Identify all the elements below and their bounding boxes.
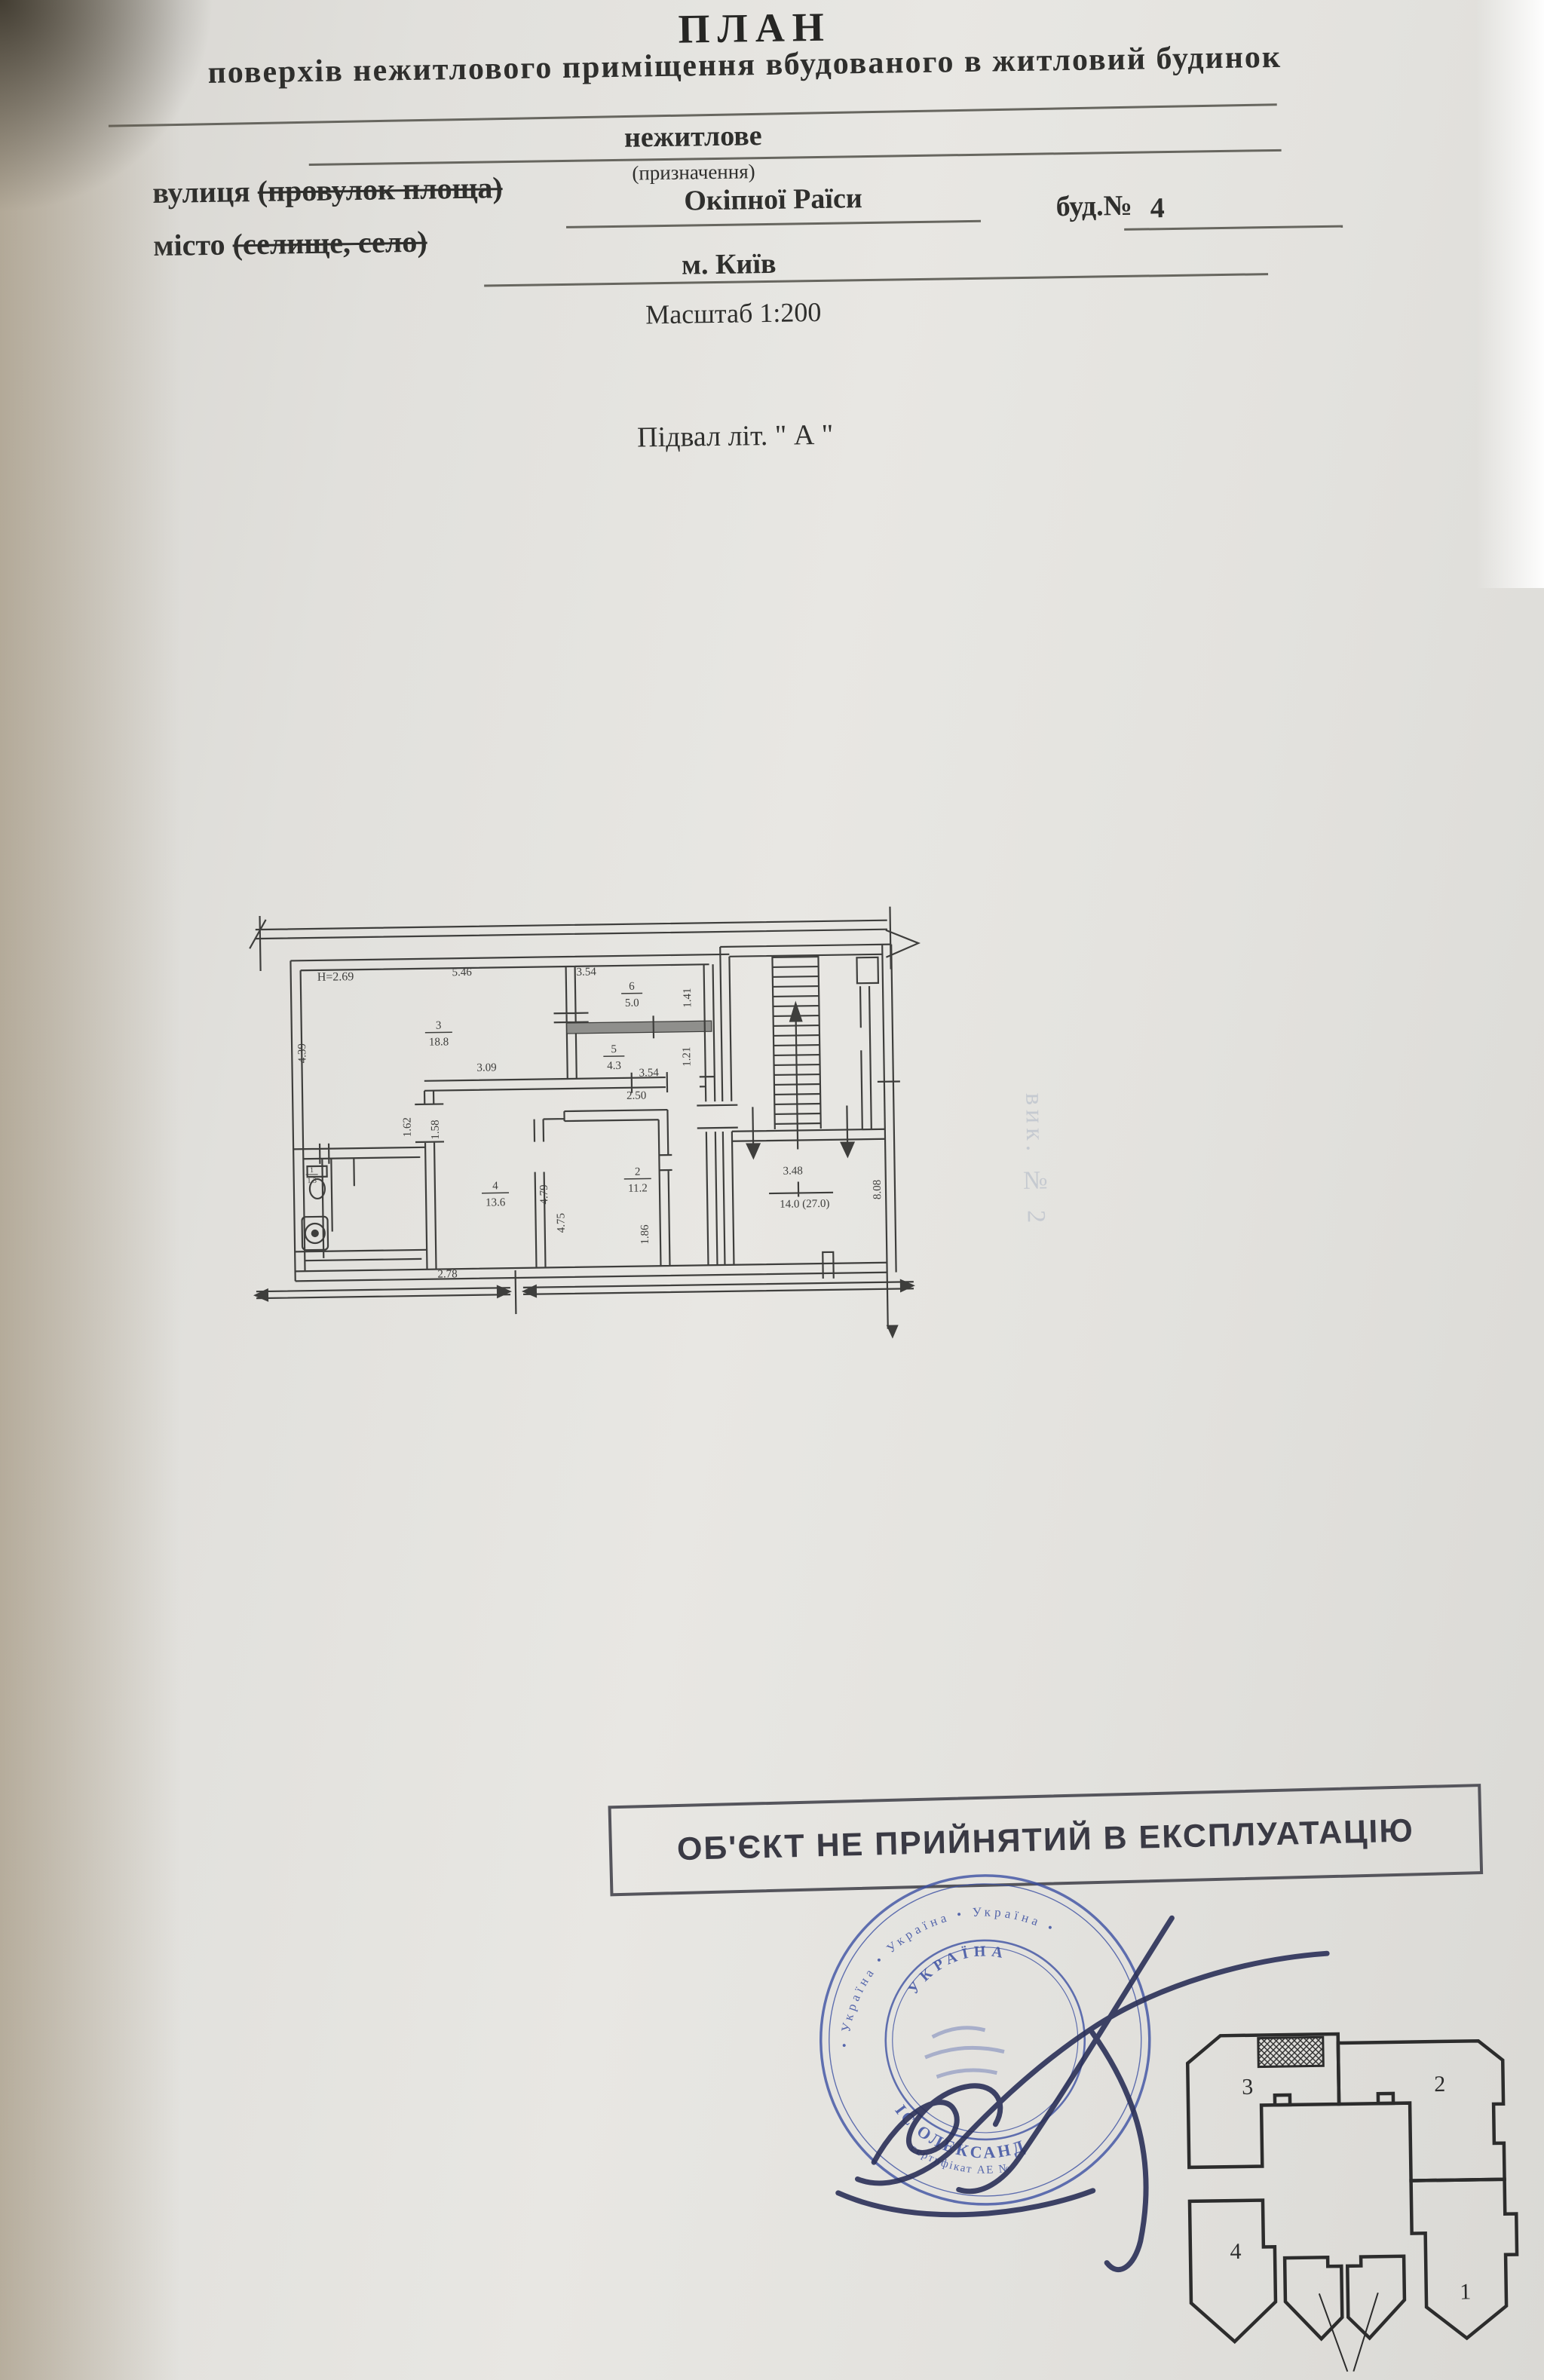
dim-348: 3.48 bbox=[783, 1165, 802, 1177]
top-extent-line bbox=[256, 920, 887, 939]
dim-354b: 3.54 bbox=[639, 1067, 659, 1079]
stair-down-arrow-right-shaft bbox=[847, 1106, 847, 1144]
height-mark: H=2.69 bbox=[317, 970, 354, 984]
stair-landing-lines bbox=[732, 1129, 885, 1141]
chimney-shaft bbox=[856, 957, 878, 983]
dim-278: 2.78 bbox=[437, 1268, 457, 1280]
room6-area: 5.0 bbox=[625, 997, 639, 1009]
house-number-label: буд.№ bbox=[1055, 189, 1132, 223]
stair-wall-bottom-arrow bbox=[887, 1325, 899, 1339]
room2-fraction-bar bbox=[624, 1178, 651, 1179]
purpose-value: нежитлове bbox=[467, 117, 920, 157]
signature-descender bbox=[1092, 2032, 1147, 2270]
key-plan-section2-outline bbox=[1338, 2041, 1505, 2182]
room3-fraction-bar bbox=[425, 1032, 452, 1033]
room4-left-wall bbox=[415, 1090, 446, 1270]
city-label: місто (селище, село) bbox=[153, 224, 427, 263]
room2-top-wall bbox=[543, 1110, 667, 1121]
dim-141: 1.41 bbox=[682, 988, 694, 1007]
room1-number: 1 bbox=[310, 1166, 314, 1175]
street-label: вулиця (провулок площа) bbox=[152, 170, 503, 210]
room5-area: 4.3 bbox=[607, 1060, 621, 1072]
bottom-wall bbox=[296, 1263, 887, 1282]
stair-down-arrow-right-head bbox=[840, 1141, 855, 1158]
boiler-dot bbox=[312, 1230, 318, 1236]
key-plan-section4-outline bbox=[1190, 2200, 1276, 2342]
bleed-through-note: вик. № 2 bbox=[1003, 1093, 1051, 1320]
room4-fraction-bar bbox=[482, 1193, 509, 1193]
city-label-main: місто bbox=[153, 227, 233, 262]
dim-475: 4.75 bbox=[555, 1213, 567, 1233]
stair-down-arrow-left-head bbox=[746, 1143, 761, 1159]
stair-right-wall bbox=[882, 945, 897, 1329]
page-content: ПЛАН поверхів нежитлового приміщення вбу… bbox=[0, 0, 1544, 2380]
street-rule bbox=[566, 220, 981, 228]
stair-inner-partition bbox=[860, 986, 872, 1129]
room4-area: 13.6 bbox=[486, 1196, 506, 1208]
room3-label: 3 18.8 bbox=[425, 1019, 453, 1049]
street-value: Окіпної Раїси bbox=[565, 180, 981, 219]
key-plan-label-3: 3 bbox=[1242, 2075, 1253, 2100]
city-label-paren: (селище, село) bbox=[232, 225, 427, 262]
key-plan-notch-right bbox=[1378, 2094, 1393, 2103]
dim-158: 1.58 bbox=[430, 1120, 442, 1139]
key-plan-label-2: 2 bbox=[1434, 2072, 1445, 2097]
dim-439: 4.39 bbox=[296, 1043, 308, 1063]
top-wall bbox=[290, 954, 729, 971]
room2-area: 11.2 bbox=[628, 1182, 648, 1194]
room3-area: 18.8 bbox=[429, 1036, 449, 1048]
room4-label: 4 13.6 bbox=[482, 1180, 510, 1209]
stair-area-label: 14.0 (27.0) bbox=[780, 1198, 829, 1211]
key-plan-section1-outline bbox=[1411, 2179, 1518, 2339]
key-plan-label-4: 4 bbox=[1230, 2239, 1241, 2264]
floor-label: Підвал літ. " А " bbox=[471, 415, 1000, 456]
mid-horizontal-wall bbox=[424, 1071, 715, 1096]
room5-label: 5 4.3 bbox=[603, 1043, 625, 1072]
signature-loops bbox=[873, 2085, 1001, 2162]
room2-right-wall bbox=[658, 1110, 673, 1266]
top-extent-ticks bbox=[250, 907, 891, 979]
room6-number: 6 bbox=[629, 981, 635, 993]
bottom-extent-line bbox=[256, 1282, 914, 1298]
stair-down-arrow-left-shaft bbox=[752, 1107, 753, 1144]
house-number-value: 4 bbox=[1150, 191, 1165, 225]
door-stub bbox=[823, 1252, 834, 1279]
dim-309: 3.09 bbox=[476, 1061, 496, 1074]
dim-479: 4.79 bbox=[538, 1184, 550, 1204]
dim-808: 8.08 bbox=[872, 1180, 884, 1199]
key-plan-label-1: 1 bbox=[1460, 2279, 1471, 2304]
house-rule bbox=[1124, 225, 1343, 231]
floor-plan-drawing: H=2.69 5.46 3.54 1.41 4.39 3.09 3.54 1.2… bbox=[244, 887, 930, 1365]
key-plan-notch-left bbox=[1275, 2095, 1290, 2105]
dim-546: 5.46 bbox=[452, 966, 472, 979]
key-plan-premises-hatch bbox=[1258, 2037, 1324, 2066]
room3-number: 3 bbox=[436, 1019, 442, 1031]
scale-label: Масштаб 1:200 bbox=[469, 293, 997, 332]
room5-number: 5 bbox=[611, 1043, 617, 1055]
room6-bottom-wall bbox=[567, 1021, 712, 1034]
wc-bottom-wall bbox=[295, 1250, 427, 1261]
key-plan-tooth-left bbox=[1285, 2257, 1343, 2339]
room1-area: 1.3 bbox=[307, 1177, 317, 1185]
bottom-extent-tick bbox=[516, 1270, 516, 1314]
room6-label: 6 5.0 bbox=[621, 981, 643, 1009]
dim-121: 1.21 bbox=[681, 1046, 693, 1066]
dim-162: 1.62 bbox=[402, 1117, 414, 1137]
room2-number: 2 bbox=[635, 1166, 641, 1178]
stair-top-wall bbox=[720, 945, 891, 957]
wc-top-wall bbox=[293, 1142, 425, 1165]
stair-up-arrow-head bbox=[789, 1000, 802, 1022]
building-key-plan: 3 2 4 1 bbox=[1173, 1983, 1544, 2374]
room4-number: 4 bbox=[492, 1180, 498, 1192]
stair-area-dim-ticks bbox=[769, 1181, 833, 1197]
street-label-main: вулиця bbox=[152, 174, 258, 210]
scanned-floor-plan-document: ПЛАН поверхів нежитлового приміщення вбу… bbox=[0, 0, 1544, 2380]
dim-354a: 3.54 bbox=[576, 966, 596, 978]
street-label-paren: (провулок площа) bbox=[257, 170, 503, 208]
dim-186: 1.86 bbox=[639, 1224, 651, 1245]
room2-label: 2 11.2 bbox=[624, 1165, 652, 1195]
dim-250: 2.50 bbox=[626, 1089, 646, 1101]
